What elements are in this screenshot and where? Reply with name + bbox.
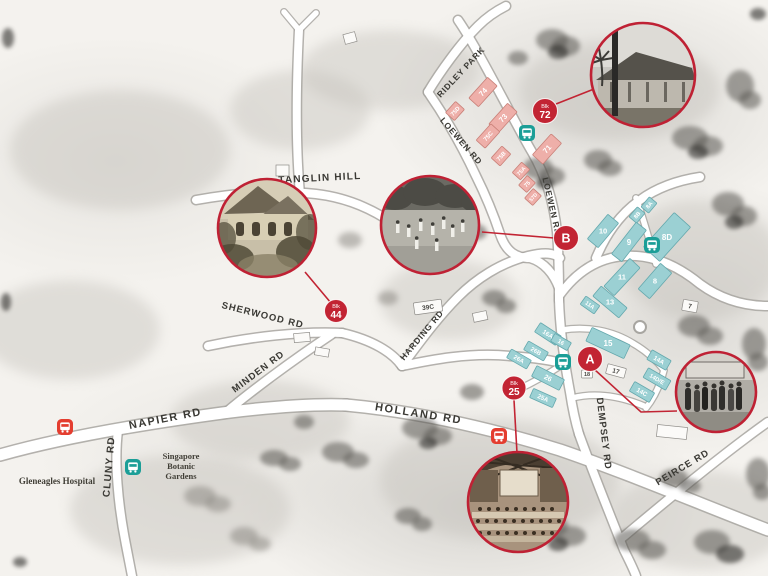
place-label-botanic-line3: Gardens xyxy=(165,471,197,481)
building-75B: 75B xyxy=(491,146,511,166)
svg-text:10: 10 xyxy=(599,227,607,236)
svg-text:11: 11 xyxy=(618,273,626,282)
svg-text:9: 9 xyxy=(627,238,632,247)
photo-circle-center xyxy=(377,176,489,276)
place-label-gleneagles-hospital: Gleneagles Hospital xyxy=(19,476,96,486)
bus-icon xyxy=(555,354,571,370)
marker-blk-44: Blk 44 xyxy=(325,300,348,323)
place-label-botanic-line1: Singapore xyxy=(163,451,200,461)
svg-text:25: 25 xyxy=(508,387,520,398)
bus-icon xyxy=(519,125,535,141)
marker-blk-25: Blk 25 xyxy=(502,376,526,400)
connector-line-b xyxy=(482,232,554,238)
photo-circle-bottom xyxy=(468,452,568,552)
svg-text:15: 15 xyxy=(604,339,613,348)
svg-text:A: A xyxy=(585,353,594,367)
bus-icon xyxy=(57,419,73,435)
building-25A: 25A xyxy=(530,388,557,407)
heritage-map-canvas: RIDLEY PARK LOEWEN RD LOEWEN RD TANGLIN … xyxy=(0,0,768,576)
marker-blk-72: Blk 72 xyxy=(533,99,558,124)
svg-text:B: B xyxy=(561,232,570,246)
place-label-botanic-line2: Botanic xyxy=(167,461,195,471)
svg-text:8: 8 xyxy=(653,277,657,286)
junction-roundabout xyxy=(634,321,646,333)
building-17: 17 xyxy=(606,364,627,379)
marker-a: A xyxy=(578,347,603,372)
marker-b: B xyxy=(554,226,579,251)
svg-text:72: 72 xyxy=(539,110,551,121)
bus-icon xyxy=(644,237,660,253)
bus-icon xyxy=(125,459,141,475)
svg-text:8D: 8D xyxy=(662,233,672,242)
svg-text:13: 13 xyxy=(606,298,614,307)
building-7: 7 xyxy=(682,299,699,312)
connector-line-blk44 xyxy=(305,272,331,303)
svg-text:44: 44 xyxy=(330,310,342,321)
bus-icon xyxy=(491,428,507,444)
svg-text:18: 18 xyxy=(584,372,590,378)
road-label-sherwood: SHERWOOD RD xyxy=(220,300,304,331)
photo-circle-right xyxy=(676,352,756,432)
